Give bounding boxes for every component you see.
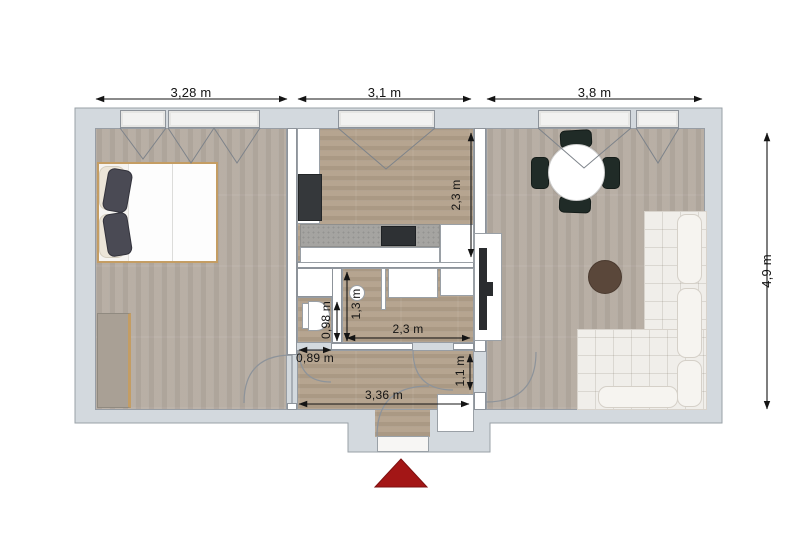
dim-kitchen-depth: 2,3 m <box>449 165 463 225</box>
linework-layer <box>0 0 800 534</box>
dim-wc-depth: 0,98 m <box>319 290 333 350</box>
dim-living-width: 3,8 m <box>486 86 703 100</box>
dim-bath-width: 2,3 m <box>378 322 438 336</box>
dim-bedroom-width: 3,28 m <box>95 86 287 100</box>
bath-door-arc <box>413 350 453 390</box>
dim-total-depth: 4,9 m <box>760 241 774 301</box>
entrance-arrow-icon <box>375 459 427 487</box>
dimension-lines <box>96 99 767 409</box>
floorplan-canvas: 3,28 m 3,1 m 3,8 m 4,9 m 2,3 m 1,3 m 0,9… <box>0 0 800 534</box>
dim-kitchen-width: 3,1 m <box>297 86 472 100</box>
dim-wc-door-width: 0,89 m <box>285 351 345 365</box>
living-door-arc <box>486 352 536 402</box>
window-swings <box>120 128 679 169</box>
dim-living-door-width: 1,1 m <box>453 341 467 401</box>
dim-hall-width: 3,36 m <box>354 388 414 402</box>
dim-bath-depth: 1,3 m <box>349 274 363 334</box>
